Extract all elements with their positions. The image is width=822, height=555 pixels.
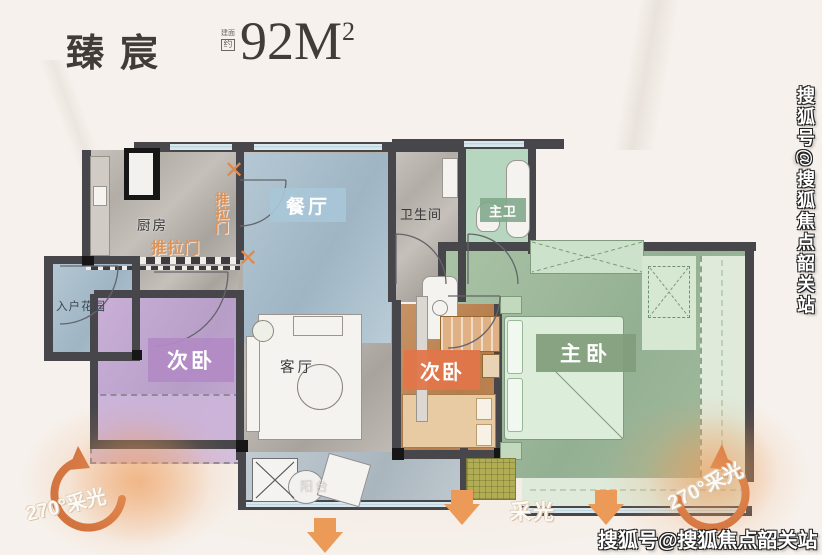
sliding-door-label: 推拉门 [151,236,201,258]
floorplan-poster: 臻宸 建面 约 92M2 [0,0,822,555]
entry-garden-label: 入户花园 [56,298,106,314]
wardrobe-cross [532,242,642,272]
arrow-head [444,504,480,525]
door-arc [448,296,500,348]
watermark-side: 搜狐号@搜狐焦点韶关站 [792,86,818,317]
left-bedroom-label: 次卧 [148,338,234,382]
arrow-head [588,504,624,525]
right-bedroom-label: 次卧 [404,350,480,390]
arrow-shaft [451,490,473,505]
closet-cross [650,268,688,316]
arrow-head [307,532,343,553]
arrow-shaft [595,490,617,505]
x-mark: ✕ [238,244,258,273]
dining-label-text: 餐厅 [286,192,330,219]
door-arc [468,234,518,284]
master-bath-label-text: 主卫 [489,201,517,220]
arrow-shaft [314,518,336,533]
left-bedroom-label-text: 次卧 [167,345,215,375]
right-bedroom-label-text: 次卧 [420,356,464,385]
master-bedroom-label: 主卧 [536,334,636,372]
sliding-door-label-vertical: 推拉门 [212,192,232,264]
master-bedroom-label-text: 主卧 [560,338,612,368]
door-arc [396,234,446,284]
balcony-label: 阳台 [300,476,330,495]
watermark-bottom: 搜狐号@搜狐焦点韶关站 [598,524,818,553]
dining-label: 餐厅 [270,188,346,222]
bathroom-label: 卫生间 [400,204,442,223]
door-arc [154,272,228,346]
washing-machine-cross [256,462,294,498]
kitchen-label: 厨房 [137,214,168,234]
bed-throw-line [552,368,622,438]
door-arc [60,266,118,324]
daylight-label: 采光 [510,496,556,526]
living-label: 客厅 [280,356,315,377]
master-bath-label: 主卫 [480,198,526,222]
x-mark: ✕ [224,156,244,185]
